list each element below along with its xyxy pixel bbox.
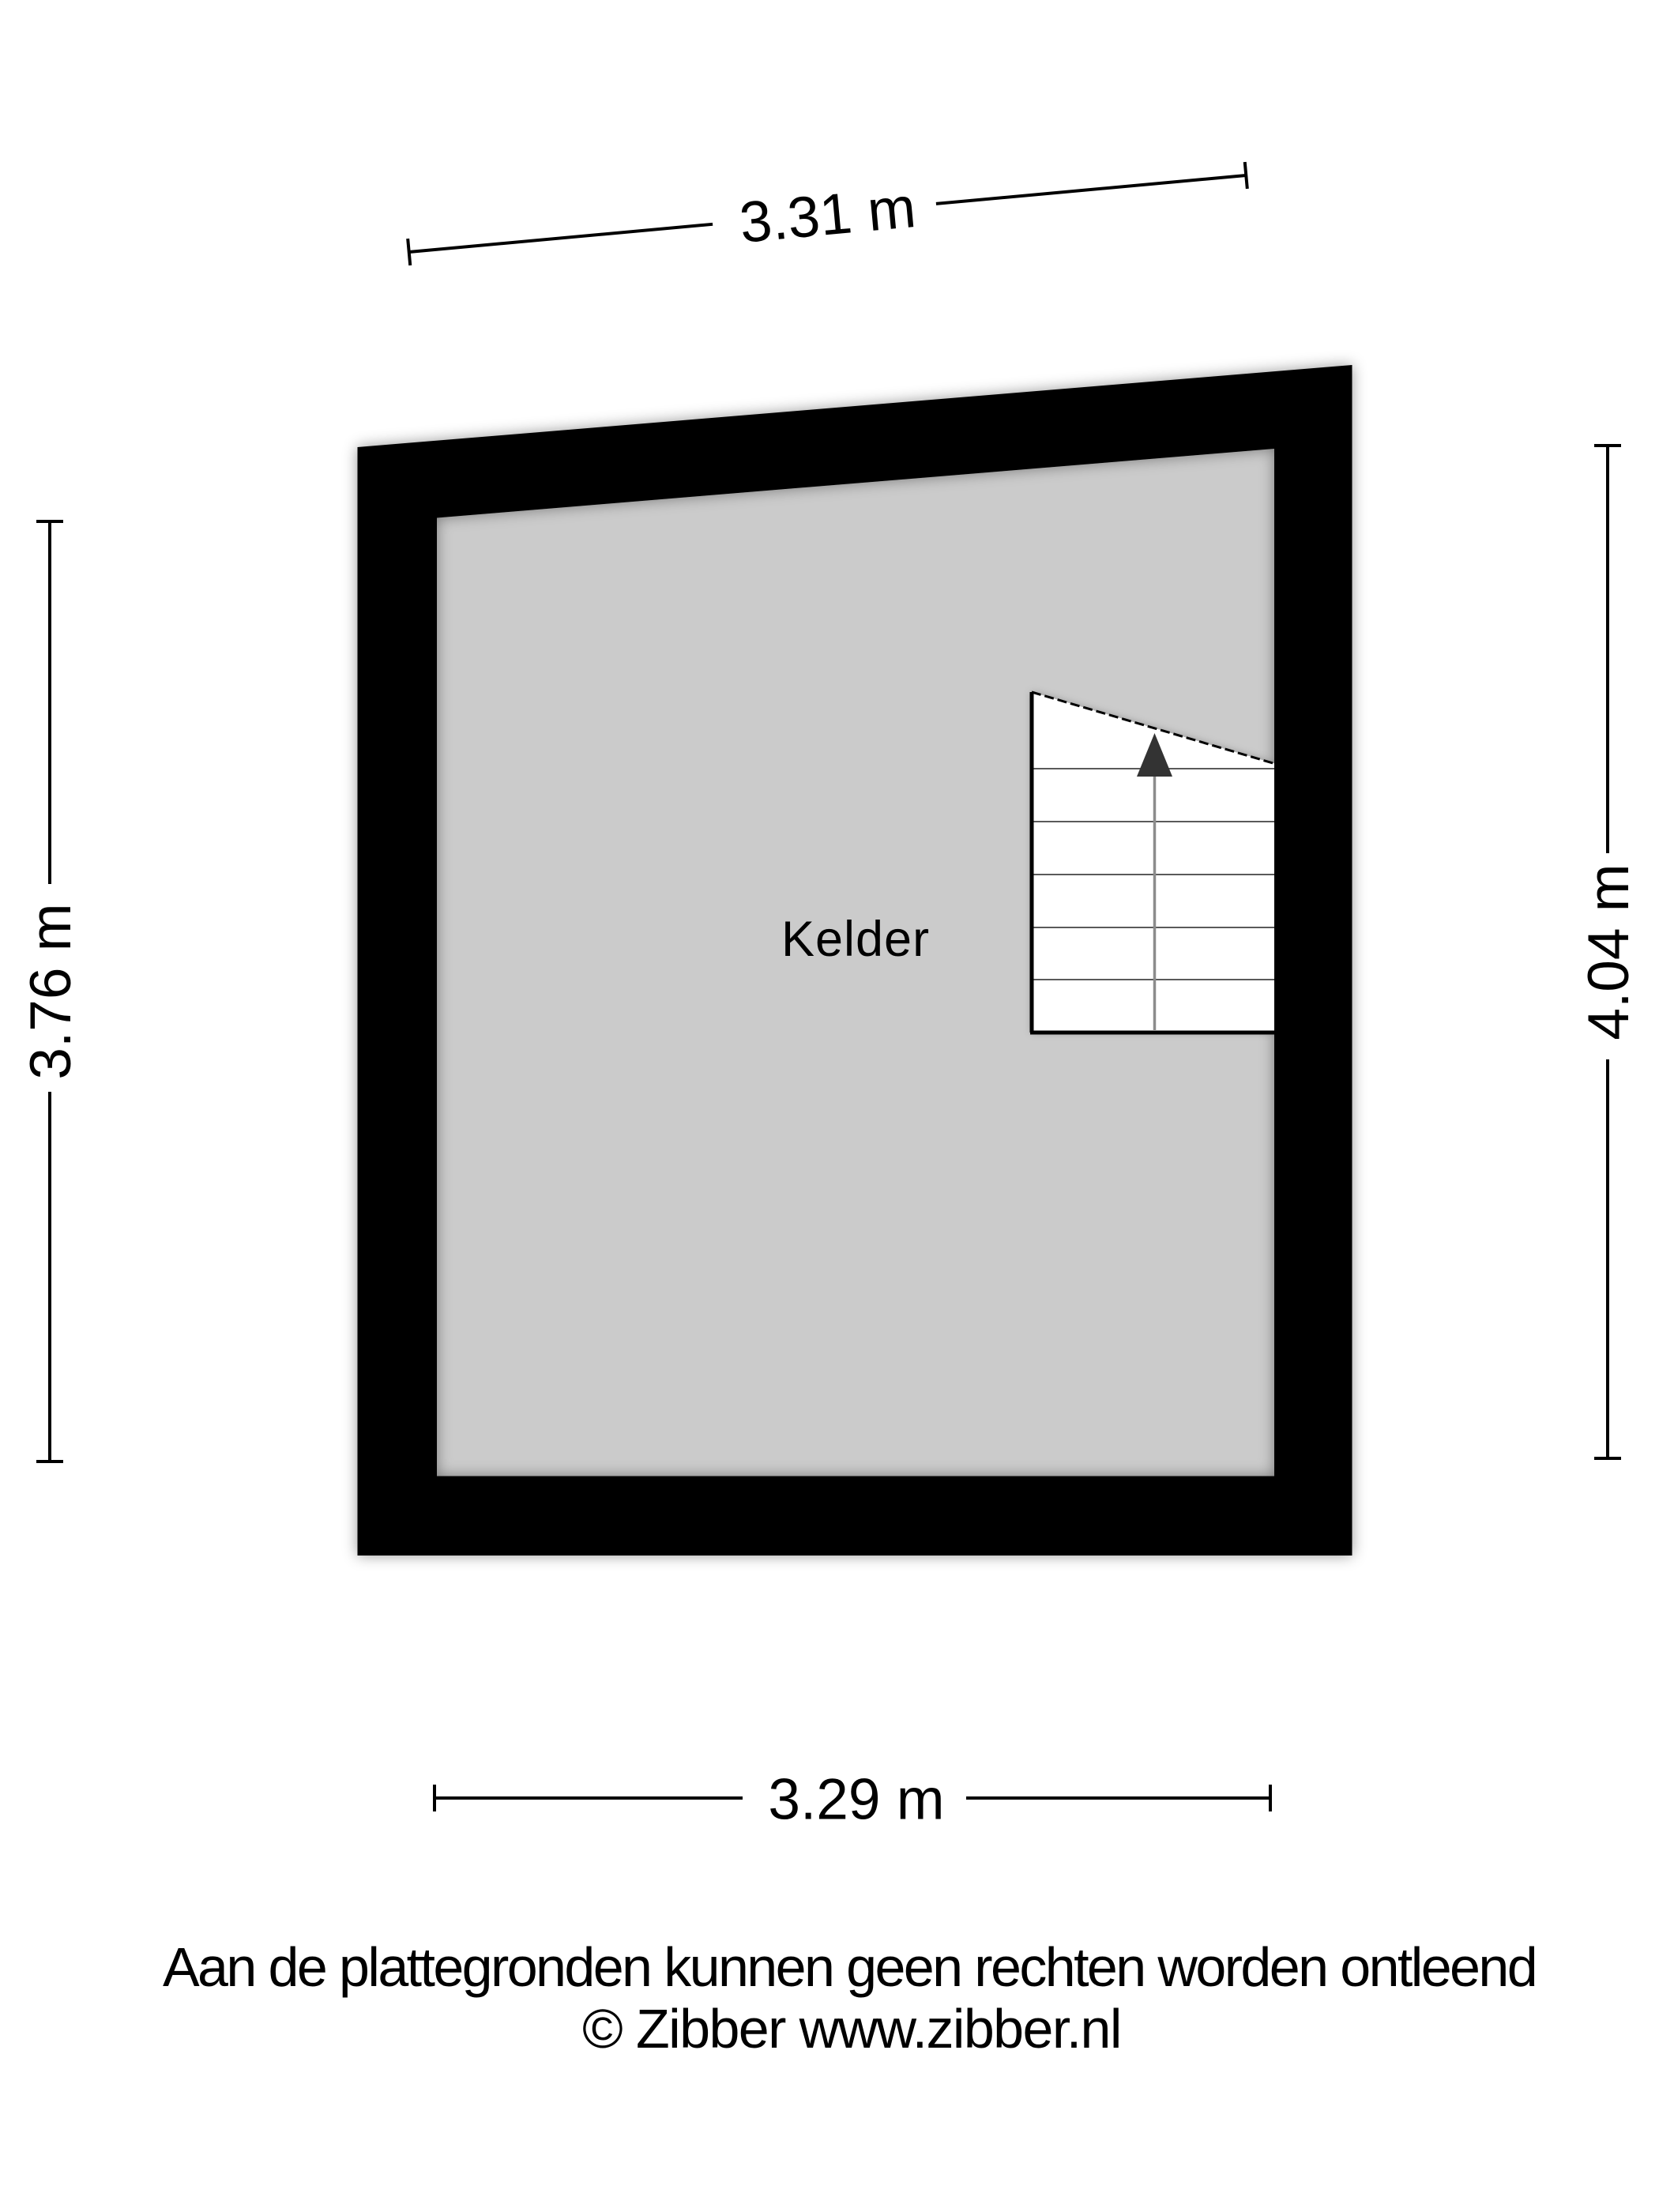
svg-text:Kelder: Kelder (781, 912, 930, 967)
svg-text:© Zibber www.zibber.nl: © Zibber www.zibber.nl (582, 1998, 1121, 2060)
svg-text:3.29 m: 3.29 m (768, 1768, 944, 1832)
svg-text:3.76 m: 3.76 m (19, 903, 83, 1079)
svg-text:4.04 m: 4.04 m (1577, 863, 1641, 1040)
svg-text:Aan de plattegronden kunnen ge: Aan de plattegronden kunnen geen rechten… (163, 1936, 1536, 1998)
svg-text:3.31 m: 3.31 m (737, 175, 919, 255)
